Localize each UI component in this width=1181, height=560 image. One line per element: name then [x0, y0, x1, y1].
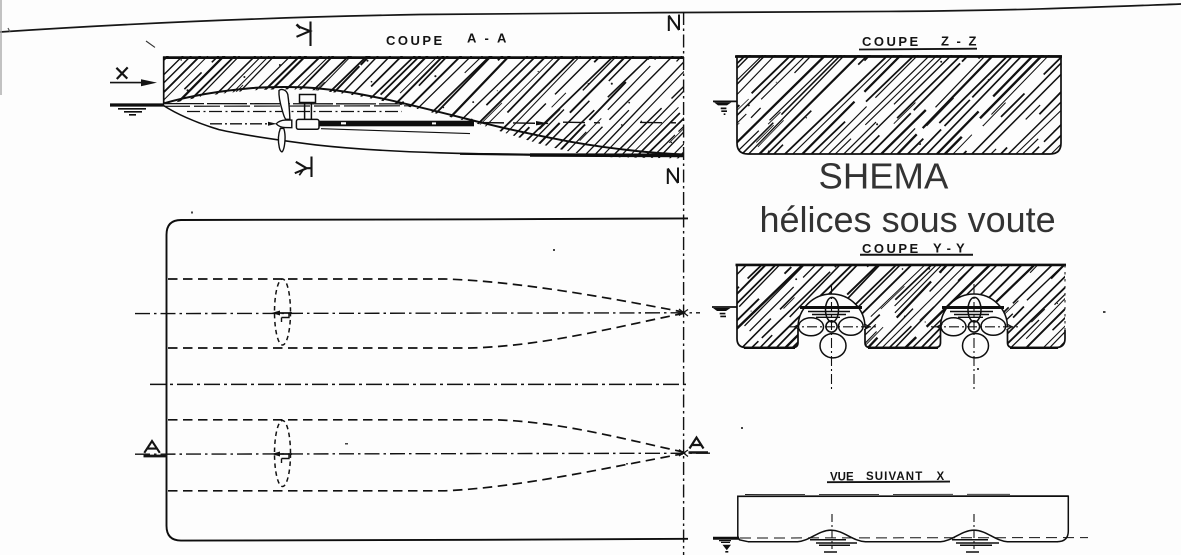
svg-text:Y - Y: Y - Y — [933, 241, 965, 256]
svg-text:A - A: A - A — [467, 31, 509, 46]
svg-text:COUPE: COUPE — [862, 34, 921, 49]
svg-text:SHEMA: SHEMA — [819, 156, 949, 197]
svg-text:hélices sous voute: hélices sous voute — [760, 199, 1056, 240]
svg-text:COUPE: COUPE — [386, 33, 445, 48]
svg-text:Z - Z: Z - Z — [941, 34, 978, 49]
